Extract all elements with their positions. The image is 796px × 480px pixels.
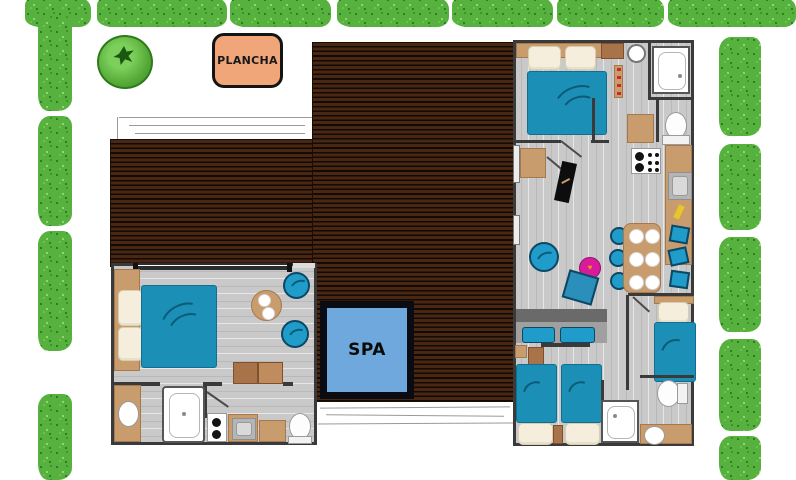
left-unit	[111, 263, 317, 445]
plate	[258, 294, 271, 307]
fridge-cabinet	[520, 148, 546, 178]
sofa	[516, 309, 607, 322]
hedge-clump	[452, 0, 553, 27]
hedge-clump	[719, 237, 761, 332]
spa-pool: SPA	[320, 301, 414, 399]
sketch-lines-bottom	[316, 405, 518, 429]
bed-pillow	[118, 327, 143, 361]
twin-bed	[516, 364, 557, 423]
armchair	[529, 242, 559, 272]
wall-partition	[626, 345, 629, 390]
bed-pillow	[565, 423, 600, 445]
hedge-clump	[668, 0, 796, 27]
plate	[645, 275, 660, 290]
wall-partition	[640, 375, 694, 378]
kitchen-sink	[228, 414, 258, 442]
sofa-cushion	[522, 327, 555, 343]
wall-partition	[648, 97, 694, 100]
double-bed	[527, 71, 607, 135]
toilet	[662, 135, 690, 145]
bed-pillow	[565, 46, 596, 70]
wall-partition	[626, 295, 629, 347]
toilet	[677, 383, 688, 404]
hedge-clump	[38, 15, 72, 111]
spa-label: SPA	[348, 340, 386, 360]
window	[137, 263, 287, 270]
door-swing	[632, 296, 650, 312]
bed-pillow	[658, 302, 689, 323]
twin-bed	[561, 364, 602, 423]
sketch-outline-top	[117, 117, 313, 140]
double-bed	[141, 285, 217, 368]
washbasin	[118, 401, 139, 427]
wall-partition	[283, 382, 293, 386]
window	[513, 145, 520, 183]
hedge-clump	[38, 116, 72, 226]
stove	[207, 413, 227, 442]
hedge-clump	[38, 394, 72, 480]
plate	[645, 252, 660, 267]
toilet	[288, 436, 312, 444]
heart-icon: ♥	[588, 264, 593, 272]
bar-stool	[669, 224, 691, 244]
cabinet	[259, 420, 286, 442]
hedge-clump	[97, 0, 227, 27]
hedge-clump	[719, 339, 761, 431]
tree	[97, 35, 153, 89]
single-bed	[654, 322, 696, 382]
plate	[629, 252, 644, 267]
shelf	[614, 65, 623, 98]
bar-stool	[669, 270, 690, 289]
bed-pillow	[518, 423, 553, 445]
hedge-clump	[337, 0, 449, 27]
cutting-board	[669, 202, 689, 222]
hedge-clump	[230, 0, 331, 27]
campsite-floor-plan: PLANCHA SPA	[0, 0, 796, 480]
washbasin	[644, 426, 665, 445]
window	[287, 263, 292, 272]
hedge-clump	[719, 37, 761, 136]
wardrobe	[258, 362, 283, 384]
wardrobe	[601, 43, 624, 59]
window	[513, 215, 520, 245]
deck-left	[111, 140, 315, 266]
bed-pillow	[118, 290, 143, 326]
hedge-clump	[719, 436, 761, 480]
plate	[645, 229, 660, 244]
sofa-cushion	[560, 327, 595, 343]
armchair	[281, 320, 309, 348]
hedge-clump	[719, 144, 761, 230]
plate	[629, 275, 644, 290]
wall-partition	[592, 98, 595, 143]
bed-pillow	[528, 46, 561, 70]
bed-base	[553, 425, 563, 444]
wall-partition	[541, 343, 590, 347]
kitchen-sink	[668, 172, 692, 200]
wall-partition	[656, 100, 659, 142]
armchair	[283, 272, 310, 299]
wall-partition	[513, 140, 561, 143]
wardrobe	[233, 362, 258, 384]
right-unit: ♥	[513, 40, 694, 446]
clock	[627, 44, 646, 63]
plate	[262, 307, 275, 320]
stove	[631, 148, 661, 174]
plancha-badge: PLANCHA	[212, 33, 283, 88]
shelf	[515, 345, 527, 358]
wall-partition	[648, 42, 651, 99]
hedge-clump	[38, 231, 72, 351]
door-swing	[560, 140, 582, 158]
door-swing	[206, 391, 228, 408]
bathtub	[162, 386, 205, 443]
vanity	[627, 114, 654, 143]
hedge-clump	[557, 0, 664, 27]
plate	[629, 229, 644, 244]
shower	[601, 400, 639, 443]
door-opening	[293, 263, 315, 268]
shower	[652, 46, 690, 94]
plancha-label: PLANCHA	[217, 54, 278, 67]
